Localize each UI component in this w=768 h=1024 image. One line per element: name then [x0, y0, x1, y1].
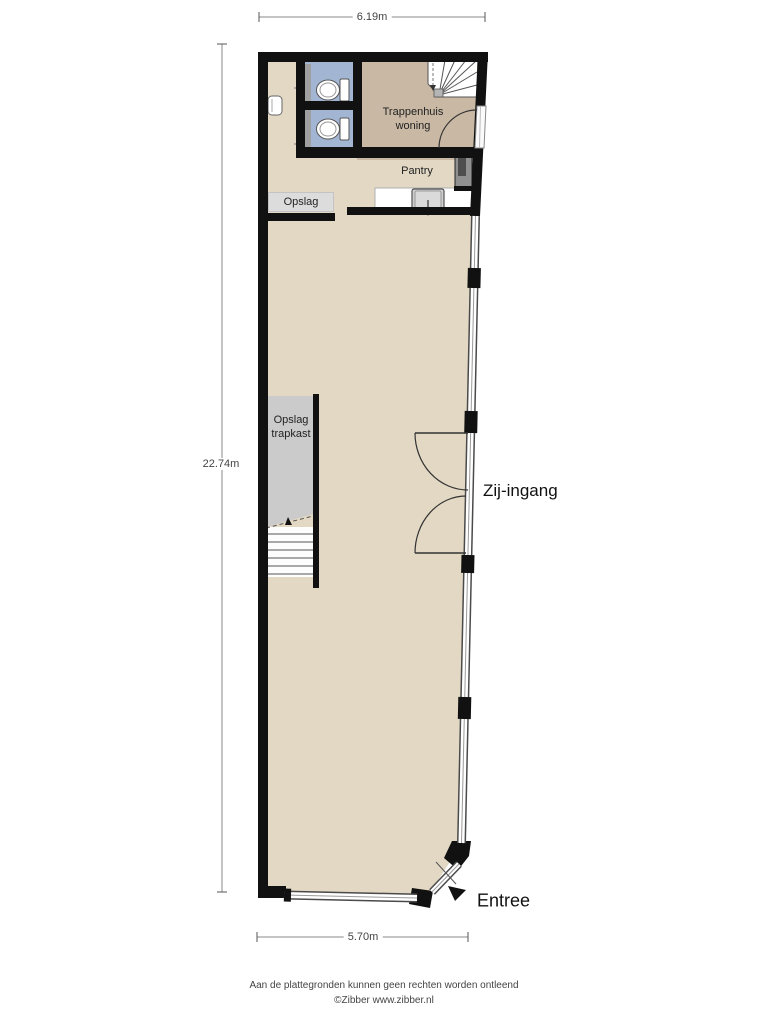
floor-areas [262, 56, 487, 896]
dimension-top: 6.19m [353, 11, 392, 23]
wc-right-wall [353, 56, 362, 158]
footer-disclaimer: Aan de plattegronden kunnen geen rechten… [0, 978, 768, 1008]
trapkast-wall [313, 394, 319, 588]
toilet-icon [317, 118, 350, 140]
block-bottom-wall [296, 147, 474, 158]
opslag-trapkast-line1: Opslag [271, 413, 310, 427]
main-entrance-label: Entree [477, 891, 530, 912]
trappenhuis-label: Trappenhuis woning [383, 105, 444, 133]
pantry-bottom-wall [347, 207, 474, 215]
floorplan-drawing [0, 0, 768, 1024]
footer-line1: Aan de plattegronden kunnen geen rechten… [0, 978, 768, 993]
bottom-left-corner [258, 886, 286, 898]
footer-line2: ©Zibber www.zibber.nl [0, 993, 768, 1008]
opslag-trapkast-line2: trapkast [271, 427, 310, 441]
stairs-icon [428, 60, 477, 97]
floorplan-page: 6.19m 22.74m 5.70m Trappenhuis woning Pa… [0, 0, 768, 1024]
trappenhuis-label-line2: woning [383, 119, 444, 133]
top-wall [258, 52, 488, 62]
wc1-door-strip [305, 64, 311, 101]
wc-left-wall [296, 56, 305, 158]
pantry-label: Pantry [401, 164, 433, 178]
opslag-stub-wall [258, 213, 335, 221]
basin-icon [268, 96, 282, 115]
wc2-door-strip [305, 110, 311, 147]
dimension-bottom: 5.70m [344, 931, 383, 943]
window-icon [284, 895, 417, 898]
opslag-label: Opslag [268, 192, 334, 212]
left-wall [258, 52, 268, 898]
trappenhuis-label-line1: Trappenhuis [383, 105, 444, 119]
opslag-trapkast-label: Opslag trapkast [271, 413, 310, 441]
entree-arrow-icon [448, 886, 466, 901]
toilet-icon [317, 79, 350, 101]
wc-divider-wall [305, 101, 354, 110]
dimension-left: 22.74m [199, 458, 244, 470]
side-entrance-label: Zij-ingang [483, 481, 558, 501]
